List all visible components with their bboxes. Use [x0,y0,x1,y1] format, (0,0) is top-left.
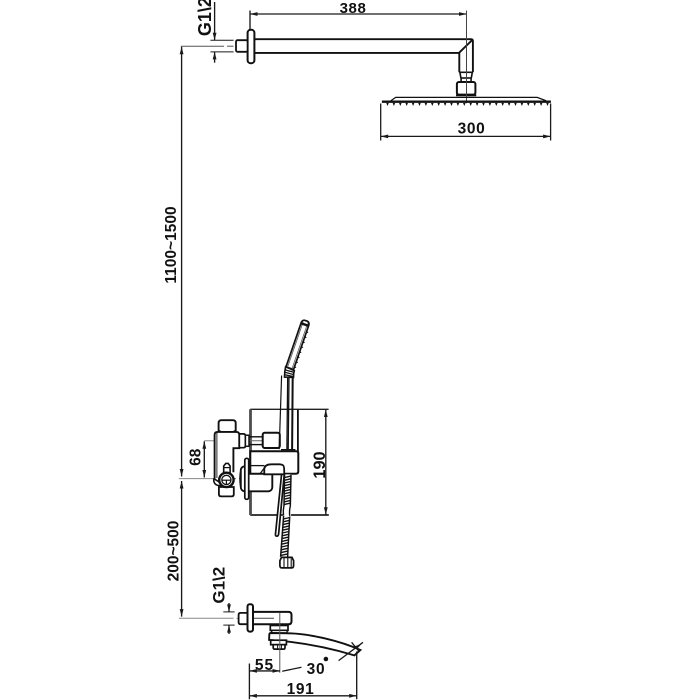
svg-text:55: 55 [255,657,274,674]
svg-text:1100~1500: 1100~1500 [163,206,180,283]
svg-text:300: 300 [458,121,486,138]
svg-text:G1\2: G1\2 [195,0,215,36]
svg-text:191: 191 [287,681,315,698]
svg-text:190: 190 [311,451,329,478]
svg-text:30: 30 [307,661,326,678]
svg-text:388: 388 [340,0,367,17]
svg-text:68: 68 [187,448,204,466]
svg-text:G1\2: G1\2 [210,567,229,604]
svg-text:200~500: 200~500 [166,521,183,582]
